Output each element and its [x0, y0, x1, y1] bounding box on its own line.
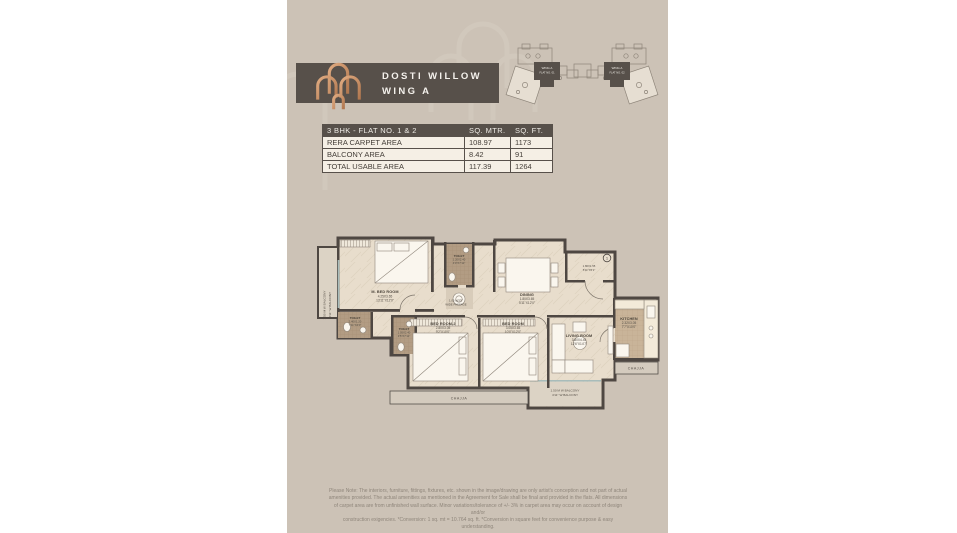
balcony-label: 4'11" W BALCONY: [328, 292, 332, 318]
disclaimer-line: of carpet area are from unfinished wall …: [327, 503, 629, 518]
room-dim-ft: 3'5"X7'11": [398, 334, 411, 338]
room-dim-ft: 7'11"X4'0": [349, 323, 362, 327]
disclaimer-line: Please Note: The interiors, furniture, f…: [327, 488, 629, 495]
dosti-arches-logo-icon: [309, 52, 367, 124]
fridge: [616, 344, 629, 357]
chajja-label: CHAJJA: [451, 397, 468, 401]
row-sqft: 91: [511, 149, 553, 161]
area-table: 3 BHK - FLAT NO. 1 & 2 SQ. MTR. SQ. FT. …: [322, 124, 553, 173]
row-sqmtr: 117.39: [465, 161, 511, 173]
wc: [398, 343, 404, 351]
balcony-label: 4'11" W BALCONY: [552, 393, 578, 397]
key-plan: WING A FLAT NO. 01 WING A FLAT NO. 02: [500, 42, 665, 118]
kitchen-platform: [615, 300, 644, 309]
header-title: DOSTI WILLOW WING A: [382, 71, 482, 97]
hob-burner: [649, 326, 653, 330]
disclaimer-line: construction exigencies. *Conversion: 1 …: [327, 517, 629, 532]
room-dim-ft: 10'0"X12'0": [505, 330, 521, 334]
tv-unit: [608, 326, 613, 354]
wc: [449, 273, 455, 281]
table-header-row: 3 BHK - FLAT NO. 1 & 2 SQ. MTR. SQ. FT.: [323, 125, 553, 137]
keyplan-flat-2-label: FLAT NO. 02: [609, 71, 625, 75]
room-dim-ft: 9'2"X10'0": [436, 330, 450, 334]
row-label: BALCONY AREA: [323, 149, 465, 161]
wing-name: WING A: [382, 86, 482, 97]
passage-label: WIDE PASSAGE: [445, 303, 466, 307]
project-name: DOSTI WILLOW: [382, 71, 482, 82]
col-flat-header: 3 BHK - FLAT NO. 1 & 2: [323, 125, 465, 137]
keyplan-flat-1-label: FLAT NO. 01: [539, 71, 555, 75]
keyplan-wing-a-label-2: WING A: [612, 66, 623, 70]
beige-panel: DOSTI WILLOW WING A: [287, 0, 668, 533]
room-label: M. BED ROOM: [371, 290, 398, 294]
room-dim-ft: 5'11"X12'0": [519, 301, 535, 305]
wardrobe: [340, 240, 370, 247]
row-label: TOTAL USABLE AREA: [323, 161, 465, 173]
balcony-label: 1.50 M W BALCONY: [323, 291, 327, 320]
room-dim-ft: 12'6"X14'7": [571, 342, 587, 346]
row-sqmtr: 108.97: [465, 137, 511, 149]
col-sqft-header: SQ. FT.: [511, 125, 553, 137]
row-sqft: 1264: [511, 161, 553, 173]
washbasin: [463, 247, 469, 253]
room-dim-ft: 4'0"X7'11": [453, 261, 466, 265]
dining-table: [506, 258, 550, 292]
washbasin: [360, 327, 366, 333]
row-sqmtr: 8.42: [465, 149, 511, 161]
balcony-label: 1.50 M W BALCONY: [551, 389, 580, 393]
sink: [647, 306, 655, 318]
brochure-page: DOSTI WILLOW WING A: [0, 0, 957, 533]
disclaimer-note: Please Note: The interiors, furniture, f…: [327, 488, 629, 532]
table-row: BALCONY AREA 8.42 91: [323, 149, 553, 161]
floor-plan: 1 M. BED ROOM 4.25X3.65 13'11"X12'0" BED…: [313, 230, 663, 415]
table-row: RERA CARPET AREA 108.97 1173: [323, 137, 553, 149]
armchair: [573, 322, 586, 332]
row-sqft: 1173: [511, 137, 553, 149]
sofa: [552, 324, 565, 360]
col-sqmtr-header: SQ. MTR.: [465, 125, 511, 137]
washbasin: [406, 321, 412, 327]
room-dim-ft: 7'7"X10'0": [622, 325, 636, 329]
disclaimer-line: amenities provided. The actual amenities…: [327, 495, 629, 502]
room-dim-ft: 13'11"X12'0": [376, 299, 394, 303]
hob-burner: [649, 334, 653, 338]
table-row: TOTAL USABLE AREA 117.39 1264: [323, 161, 553, 173]
chajja-label: CHAJJA: [628, 367, 645, 371]
keyplan-wing-a-label-1: WING A: [542, 66, 553, 70]
entry-dim-ft: 5'11"X5'1": [583, 268, 596, 272]
row-label: RERA CARPET AREA: [323, 137, 465, 149]
